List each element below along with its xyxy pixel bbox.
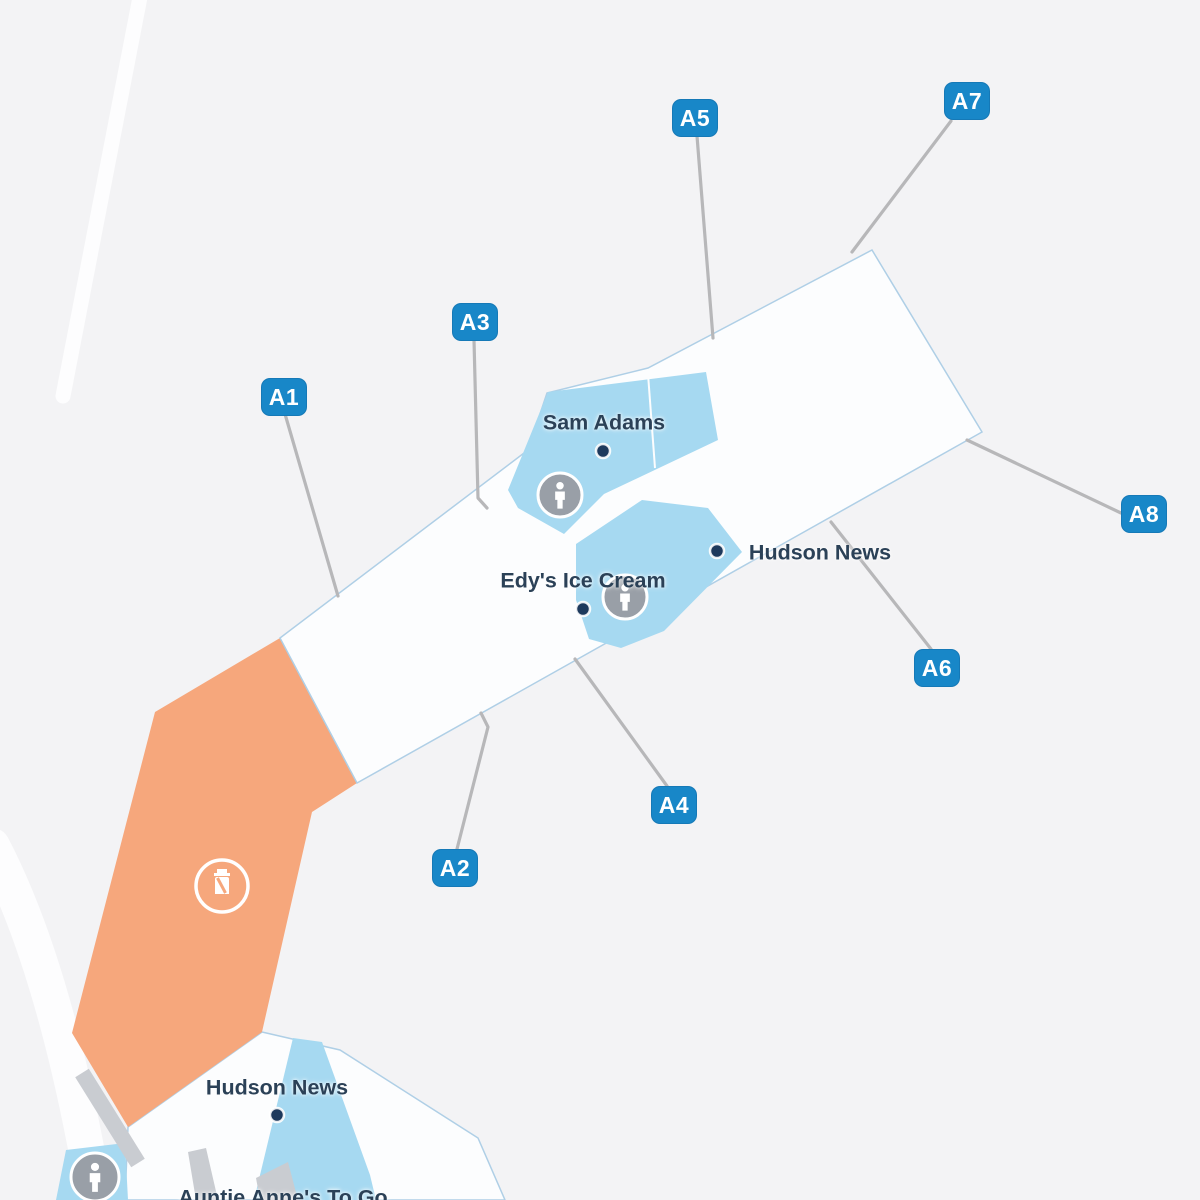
gate-badge-a5[interactable]: A5 xyxy=(672,99,718,137)
gate-badge-a8[interactable]: A8 xyxy=(1121,495,1167,533)
place-label-hudson-news-terminal[interactable]: Hudson News xyxy=(206,1076,348,1101)
gate-leader-a5 xyxy=(697,136,713,338)
map-canvas xyxy=(0,0,1200,1200)
poi-dot-hudson-news-concourse[interactable] xyxy=(710,544,724,558)
poi-dot-hudson-news-terminal[interactable] xyxy=(270,1108,284,1122)
gate-leader-a8 xyxy=(967,440,1121,513)
place-label-sam-adams[interactable]: Sam Adams xyxy=(543,411,665,436)
poi-dot-sam-adams[interactable] xyxy=(596,444,610,458)
poi-dot-edys-ice-cream[interactable] xyxy=(576,602,590,616)
gate-leader-a1 xyxy=(285,414,338,596)
airport-terminal-map[interactable]: Sam AdamsEdy's Ice CreamHudson NewsHudso… xyxy=(0,0,1200,1200)
gate-leader-a4 xyxy=(575,659,667,786)
road-stripe-top-left xyxy=(63,0,141,396)
place-label-auntie-annes-to-go[interactable]: Auntie Anne's To Go xyxy=(178,1186,387,1200)
gate-badge-a1[interactable]: A1 xyxy=(261,378,307,416)
gate-badge-a6[interactable]: A6 xyxy=(914,649,960,687)
gate-badge-a3[interactable]: A3 xyxy=(452,303,498,341)
restroom-icon-1[interactable] xyxy=(538,473,582,517)
gate-leader-a7 xyxy=(852,121,951,252)
gate-leader-a2 xyxy=(457,713,488,849)
restroom-icon-3[interactable] xyxy=(71,1153,119,1200)
gate-badge-a2[interactable]: A2 xyxy=(432,849,478,887)
gate-badge-a7[interactable]: A7 xyxy=(944,82,990,120)
place-label-edys-ice-cream[interactable]: Edy's Ice Cream xyxy=(500,569,665,594)
place-label-hudson-news-concourse[interactable]: Hudson News xyxy=(749,541,891,566)
gate-badge-a4[interactable]: A4 xyxy=(651,786,697,824)
